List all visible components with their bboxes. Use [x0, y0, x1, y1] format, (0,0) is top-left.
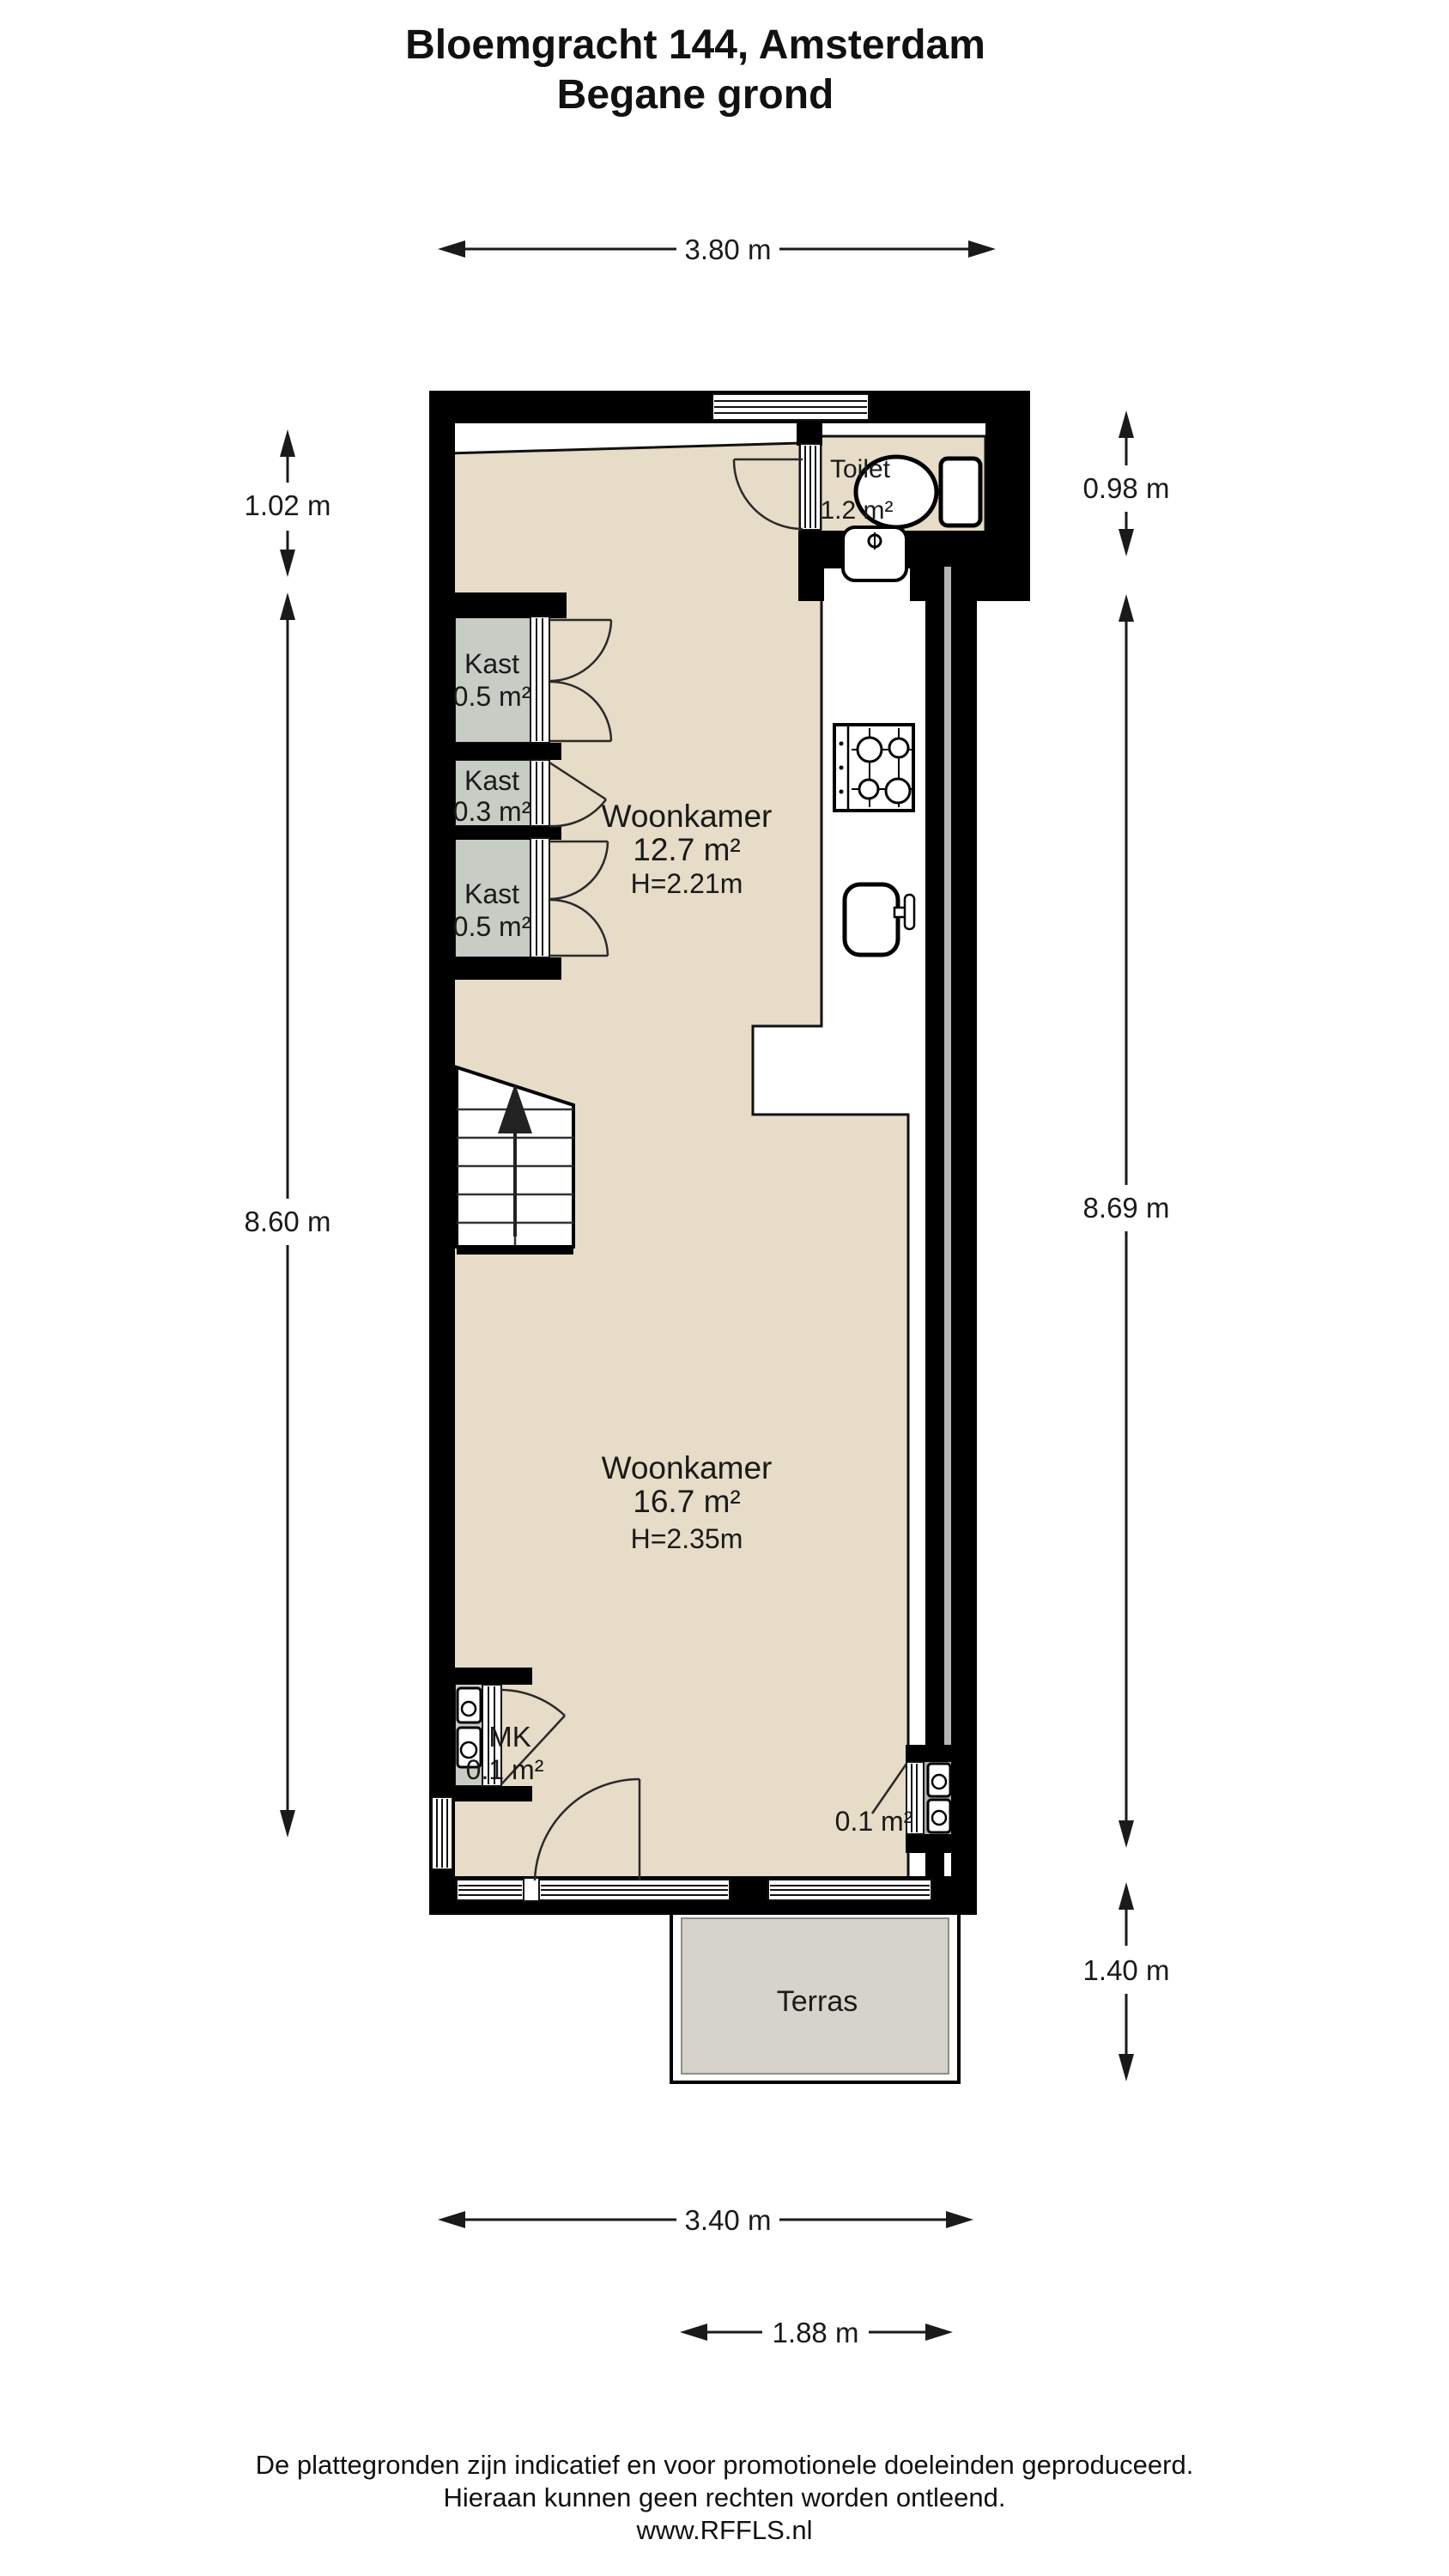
kast1-area: 0.5 m²	[453, 681, 531, 712]
dim-label-right-terrace: 1.40 m	[1083, 1954, 1170, 1986]
woonkamer-front-height: H=2.21m	[631, 868, 743, 899]
toilet-sink-icon	[843, 527, 906, 580]
dim-label-bottom-main: 3.40 m	[685, 2204, 772, 2236]
floorplan-page: Bloemgracht 144, Amsterdam Begane grond	[0, 0, 1449, 2576]
terras-name: Terras	[777, 1985, 858, 2018]
window-terrace	[768, 1880, 931, 1900]
window-bottom-left	[457, 1880, 524, 1900]
kast3-area: 0.5 m²	[453, 911, 531, 942]
mk-area: 0.1 m²	[466, 1754, 544, 1785]
website-url: www.RFFLS.nl	[0, 2514, 1449, 2547]
kast1-floor	[455, 617, 530, 743]
toilet-door-jamb	[800, 444, 821, 530]
toilet-name: Toilet	[830, 455, 891, 483]
disclaimer-line1: De plattegronden zijn indicatief en voor…	[0, 2449, 1449, 2482]
right-meter-area: 0.1 m²	[835, 1806, 913, 1837]
floorplan-drawing: 3.80 m 3.40 m 1.88 m 1.02 m 8.60 m 0.98 …	[0, 0, 1449, 2576]
dim-label-left-main: 8.60 m	[245, 1206, 331, 1237]
dim-label-left-upper: 1.02 m	[245, 489, 331, 521]
dim-label-right-upper: 0.98 m	[1083, 472, 1170, 504]
kast3-door-jamb	[530, 838, 549, 957]
disclaimer-line2: Hieraan kunnen geen rechten worden ontle…	[0, 2482, 1449, 2514]
kast3-name: Kast	[464, 878, 519, 909]
kast2-area: 0.3 m²	[453, 796, 531, 827]
window-top	[712, 394, 869, 420]
kast1-door-jamb	[530, 617, 549, 743]
kitchen-sink-icon	[845, 884, 914, 955]
dim-label-right-main: 8.69 m	[1083, 1192, 1170, 1224]
kast1-name: Kast	[464, 648, 519, 679]
party-wall-gap	[944, 567, 951, 1745]
toilet-area: 1.2 m²	[820, 496, 893, 525]
kast2-name: Kast	[464, 765, 519, 796]
dim-label-top: 3.80 m	[685, 234, 772, 265]
window-post	[524, 1878, 539, 1901]
woonkamer-back-area: 16.7 m²	[633, 1484, 740, 1519]
disclaimer: De plattegronden zijn indicatief en voor…	[0, 2449, 1449, 2547]
woonkamer-back-name: Woonkamer	[602, 1450, 773, 1485]
woonkamer-back-height: H=2.35m	[631, 1523, 743, 1554]
woonkamer-front-name: Woonkamer	[602, 799, 773, 834]
woonkamer-front-area: 12.7 m²	[633, 832, 740, 867]
stove-icon	[834, 725, 913, 811]
kast2-door-jamb	[530, 760, 549, 826]
window-left	[432, 1797, 452, 1869]
dim-label-bottom-terrace: 1.88 m	[773, 2317, 859, 2348]
mk-name: MK	[488, 1721, 531, 1753]
window-bottom-center	[539, 1880, 730, 1900]
